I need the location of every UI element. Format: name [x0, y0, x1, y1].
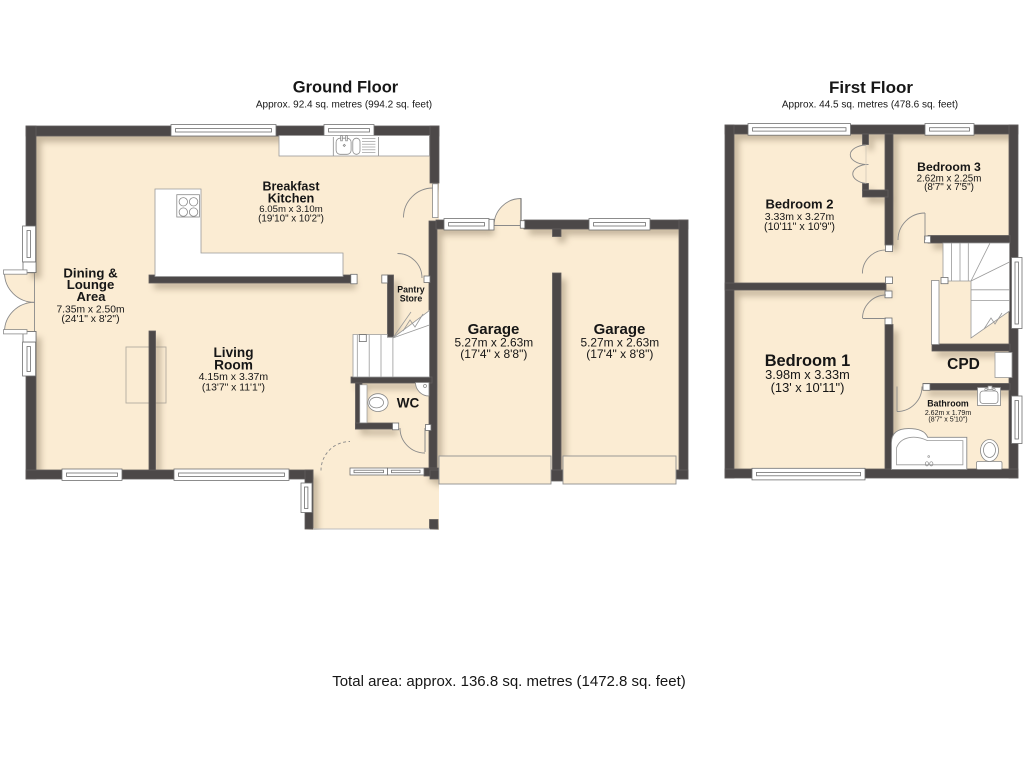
svg-text:(24'1" x 8'2"): (24'1" x 8'2"): [61, 314, 119, 325]
svg-text:(19'10" x 10'2"): (19'10" x 10'2"): [258, 213, 324, 224]
svg-text:Ground Floor: Ground Floor: [293, 79, 399, 97]
svg-text:First Floor: First Floor: [829, 78, 913, 97]
svg-text:(13'7" x 11'1"): (13'7" x 11'1"): [202, 383, 265, 394]
svg-text:(10'11" x 10'9"): (10'11" x 10'9"): [764, 221, 835, 233]
svg-text:4.15m x 3.37m: 4.15m x 3.37m: [199, 371, 269, 383]
svg-text:Approx. 44.5 sq. metres (478.6: Approx. 44.5 sq. metres (478.6 sq. feet): [782, 100, 958, 111]
svg-text:(17'4" x 8'8"): (17'4" x 8'8"): [586, 347, 653, 361]
svg-text:WC: WC: [397, 395, 420, 410]
svg-text:Area: Area: [77, 289, 107, 304]
svg-text:Bedroom 2: Bedroom 2: [766, 197, 834, 212]
svg-text:(8'7" x 7'5"): (8'7" x 7'5"): [924, 182, 974, 193]
svg-text:Total area: approx. 136.8 sq.: Total area: approx. 136.8 sq. metres (14…: [332, 673, 686, 690]
svg-text:(8'7" x 5'10"): (8'7" x 5'10"): [928, 417, 967, 424]
svg-text:Store: Store: [400, 294, 423, 304]
svg-text:Approx. 92.4 sq. metres (994.2: Approx. 92.4 sq. metres (994.2 sq. feet): [256, 100, 432, 111]
svg-text:(17'4" x 8'8"): (17'4" x 8'8"): [460, 347, 527, 361]
svg-text:CPD: CPD: [947, 356, 980, 373]
svg-text:Bathroom: Bathroom: [927, 399, 969, 409]
svg-text:Bedroom 3: Bedroom 3: [917, 160, 981, 174]
svg-text:(13' x 10'11"): (13' x 10'11"): [771, 380, 845, 395]
